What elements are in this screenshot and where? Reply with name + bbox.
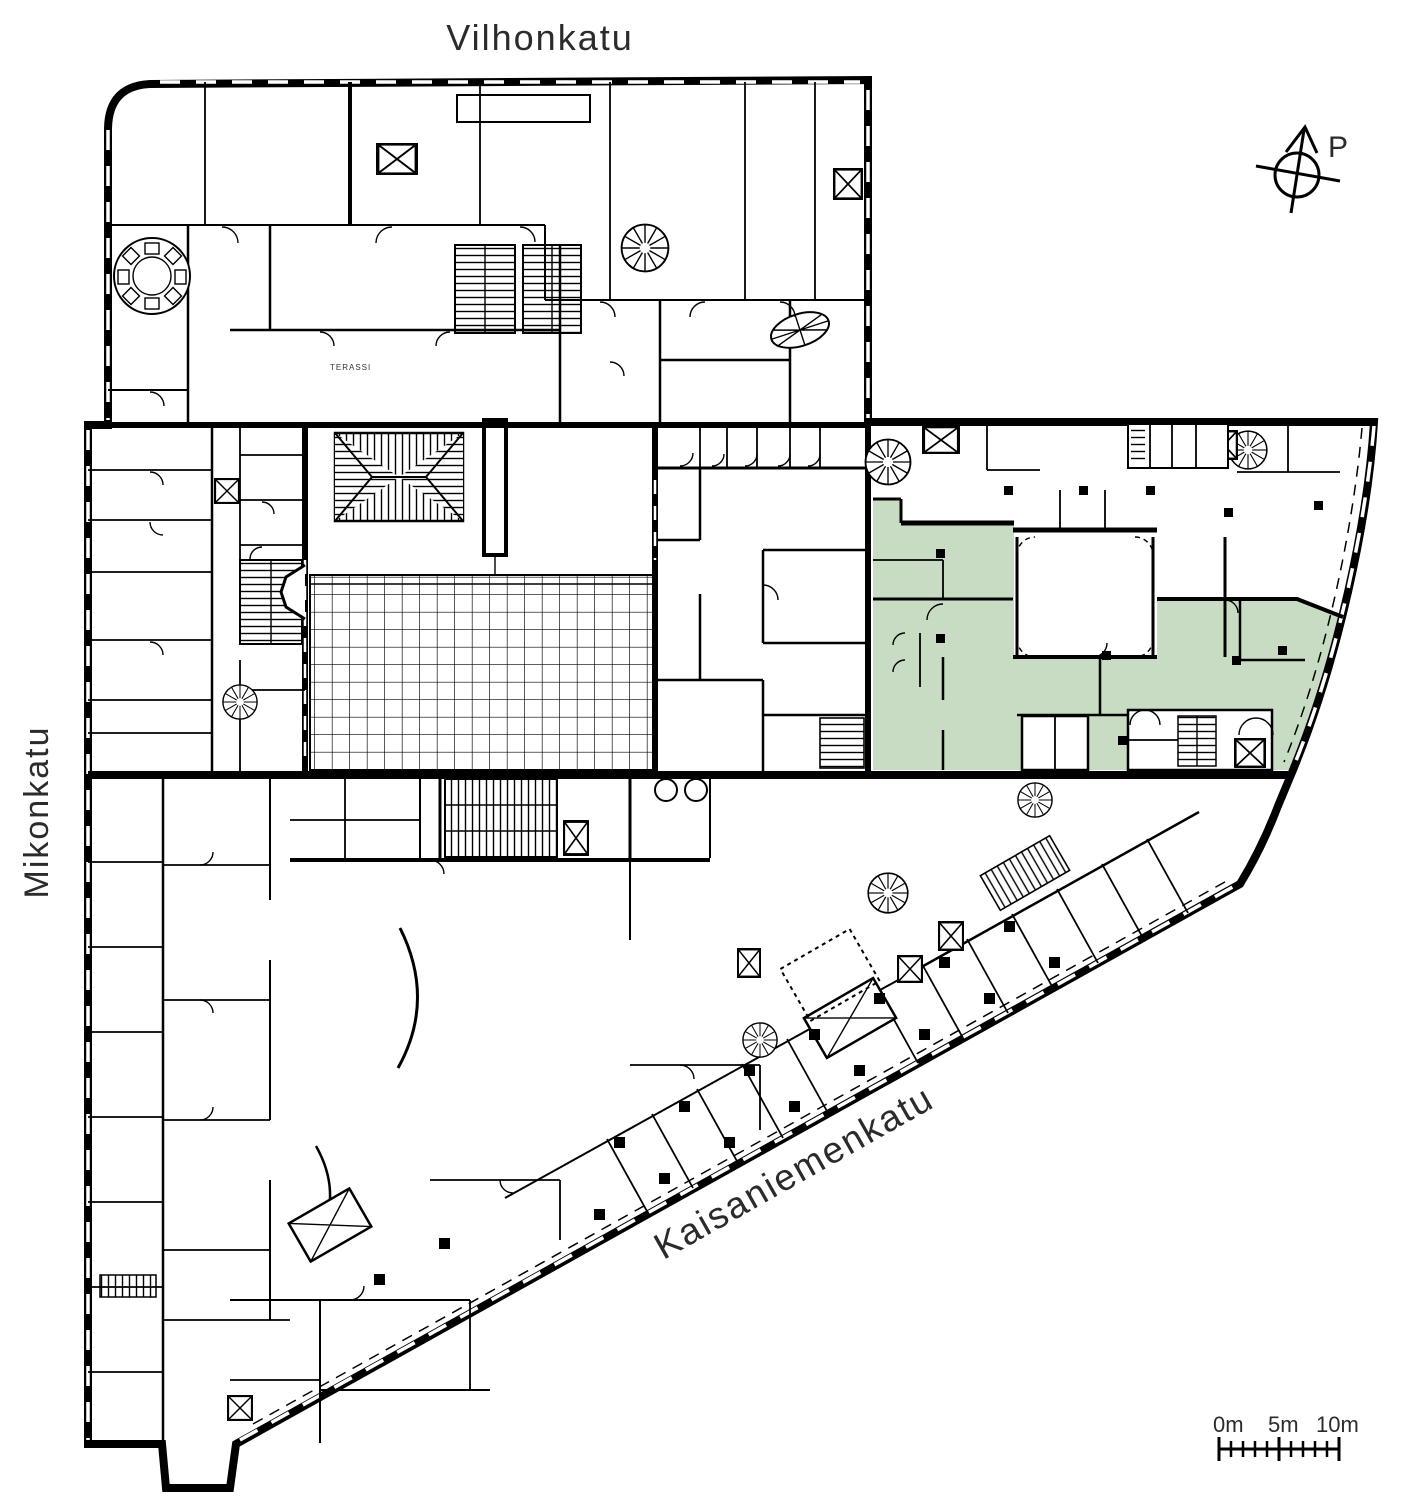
terrace-label: TERASSI	[330, 363, 371, 372]
scale-label-0m: 0m	[1213, 1412, 1244, 1437]
scale-label-10m: 10m	[1316, 1412, 1359, 1437]
street-label-vilhonkatu: Vilhonkatu	[446, 17, 633, 58]
scale-label-5m: 5m	[1268, 1412, 1299, 1437]
courtyard-grid	[310, 575, 655, 770]
floor-plan-page: Vilhonkatu Mikonkatu Kaisaniemenkatu TER…	[0, 0, 1408, 1500]
street-label-mikonkatu: Mikonkatu	[18, 726, 56, 899]
floor-plan-canvas: Vilhonkatu Mikonkatu Kaisaniemenkatu TER…	[0, 0, 1408, 1500]
north-label: P	[1328, 131, 1348, 164]
